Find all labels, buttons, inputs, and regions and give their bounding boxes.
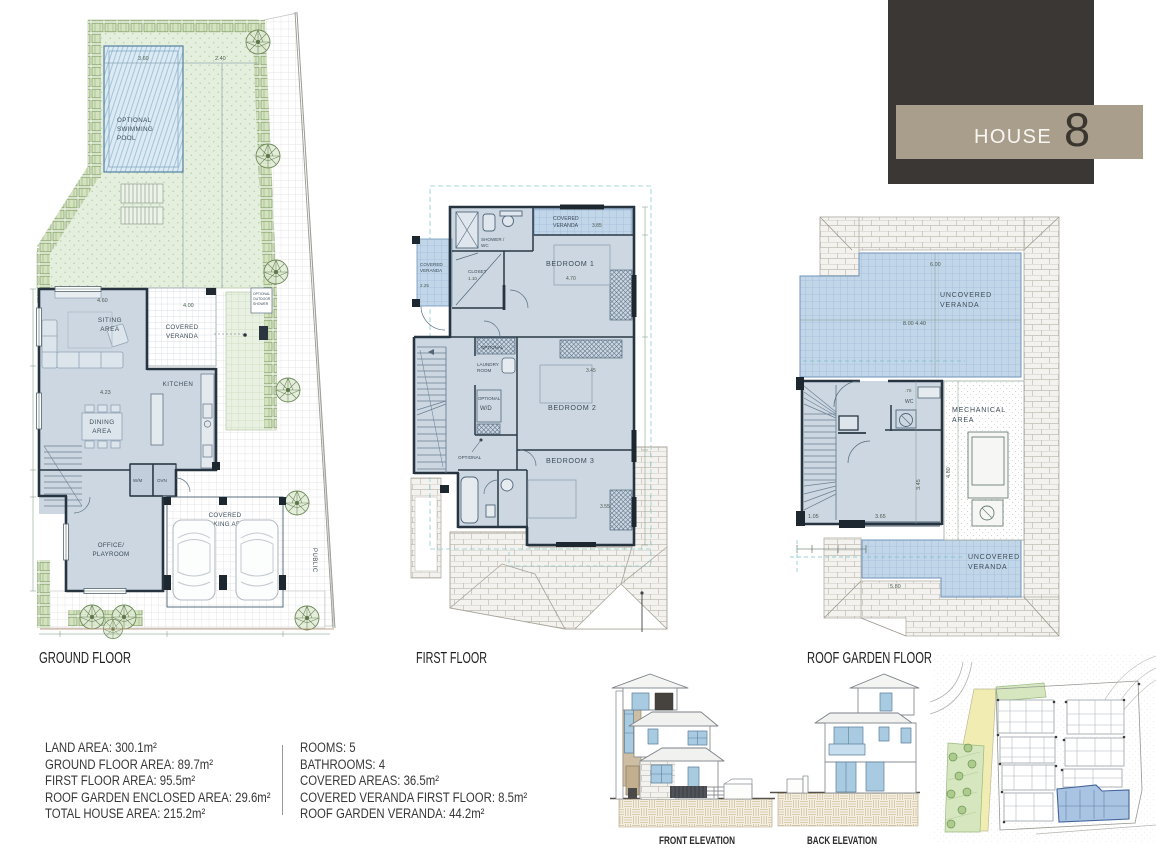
svg-text:BEDROOM 1: BEDROOM 1 xyxy=(546,259,595,268)
svg-text:4.70: 4.70 xyxy=(566,276,576,282)
svg-text:8.00 4.40: 8.00 4.40 xyxy=(903,321,926,327)
svg-text:VERANDA: VERANDA xyxy=(166,333,199,340)
svg-text:COVERED: COVERED xyxy=(209,512,242,519)
svg-text:VERANDA: VERANDA xyxy=(420,268,443,273)
svg-text:3.65: 3.65 xyxy=(875,514,886,520)
svg-text:4.23: 4.23 xyxy=(100,390,111,396)
svg-text:OUTDOOR: OUTDOOR xyxy=(253,297,271,301)
svg-text:VERANDA: VERANDA xyxy=(968,564,1007,571)
svg-text:OPTIONAL: OPTIONAL xyxy=(478,396,501,401)
svg-text:5.80: 5.80 xyxy=(890,584,901,590)
svg-text:4.80: 4.80 xyxy=(946,467,952,478)
svg-text:3.45: 3.45 xyxy=(586,368,596,374)
svg-text:AREA: AREA xyxy=(100,326,120,333)
svg-text:.70: .70 xyxy=(905,388,912,393)
svg-text:OPTIONAL: OPTIONAL xyxy=(458,455,482,460)
svg-text:2.40: 2.40 xyxy=(215,56,226,62)
svg-text:3.60: 3.60 xyxy=(138,56,149,62)
svg-text:BEDROOM 3: BEDROOM 3 xyxy=(546,456,595,465)
svg-text:3.55: 3.55 xyxy=(600,504,610,510)
svg-text:WC: WC xyxy=(905,399,914,405)
svg-text:PLAYROOM: PLAYROOM xyxy=(92,551,129,558)
svg-text:COVERED: COVERED xyxy=(553,216,579,222)
svg-text:3.45: 3.45 xyxy=(916,479,922,490)
svg-text:3.85: 3.85 xyxy=(592,223,602,229)
svg-text:PUBLIC: PUBLIC xyxy=(311,548,317,573)
svg-text:BEDROOM 2: BEDROOM 2 xyxy=(548,403,597,412)
svg-text:OPTIONAL: OPTIONAL xyxy=(253,292,270,296)
svg-text:4.00: 4.00 xyxy=(183,303,194,309)
svg-text:W/M: W/M xyxy=(133,478,142,483)
svg-text:LAUNDRY: LAUNDRY xyxy=(477,362,499,367)
svg-text:SHOWER /: SHOWER / xyxy=(481,237,505,242)
svg-text:1.05: 1.05 xyxy=(808,514,819,520)
svg-text:VERANDA: VERANDA xyxy=(940,302,979,309)
svg-text:GROUND FLOOR: GROUND FLOOR xyxy=(39,650,131,667)
svg-text:OPTIONAL: OPTIONAL xyxy=(117,117,152,124)
svg-text:BACK ELEVATION: BACK ELEVATION xyxy=(807,835,877,847)
svg-text:ROOM: ROOM xyxy=(477,368,491,373)
svg-text:VERANDA: VERANDA xyxy=(553,223,579,229)
svg-text:6.00: 6.00 xyxy=(930,262,941,268)
svg-text:CLOSET: CLOSET xyxy=(468,269,487,274)
svg-text:OFFICE/: OFFICE/ xyxy=(98,542,125,549)
svg-text:FRONT ELEVATION: FRONT ELEVATION xyxy=(659,835,735,847)
svg-text:UNCOVERED: UNCOVERED xyxy=(940,292,992,299)
svg-text:1.10: 1.10 xyxy=(468,276,477,281)
svg-text:COVERED: COVERED xyxy=(166,324,199,331)
svg-text:OVN: OVN xyxy=(157,478,167,483)
svg-text:ROOF GARDEN FLOOR: ROOF GARDEN FLOOR xyxy=(807,650,932,667)
svg-text:MECHANICAL: MECHANICAL xyxy=(952,407,1006,414)
svg-text:OPTIONAL: OPTIONAL xyxy=(481,345,504,350)
svg-text:AREA: AREA xyxy=(952,417,974,424)
svg-text:KITCHEN: KITCHEN xyxy=(163,381,194,388)
svg-text:4.60: 4.60 xyxy=(97,298,108,304)
svg-text:POOL: POOL xyxy=(117,135,136,142)
svg-text:SITING: SITING xyxy=(98,317,122,324)
svg-text:COVERED: COVERED xyxy=(420,262,443,267)
svg-text:WC: WC xyxy=(481,243,489,248)
svg-text:2.25: 2.25 xyxy=(420,283,429,288)
svg-text:DINING: DINING xyxy=(89,419,114,426)
svg-text:SHOWER: SHOWER xyxy=(253,302,269,306)
svg-text:FIRST FLOOR: FIRST FLOOR xyxy=(416,650,487,667)
svg-text:AREA: AREA xyxy=(92,428,112,435)
svg-text:W/D: W/D xyxy=(480,406,492,412)
svg-text:UNCOVERED: UNCOVERED xyxy=(968,554,1020,561)
svg-text:SWIMMING: SWIMMING xyxy=(117,126,153,133)
